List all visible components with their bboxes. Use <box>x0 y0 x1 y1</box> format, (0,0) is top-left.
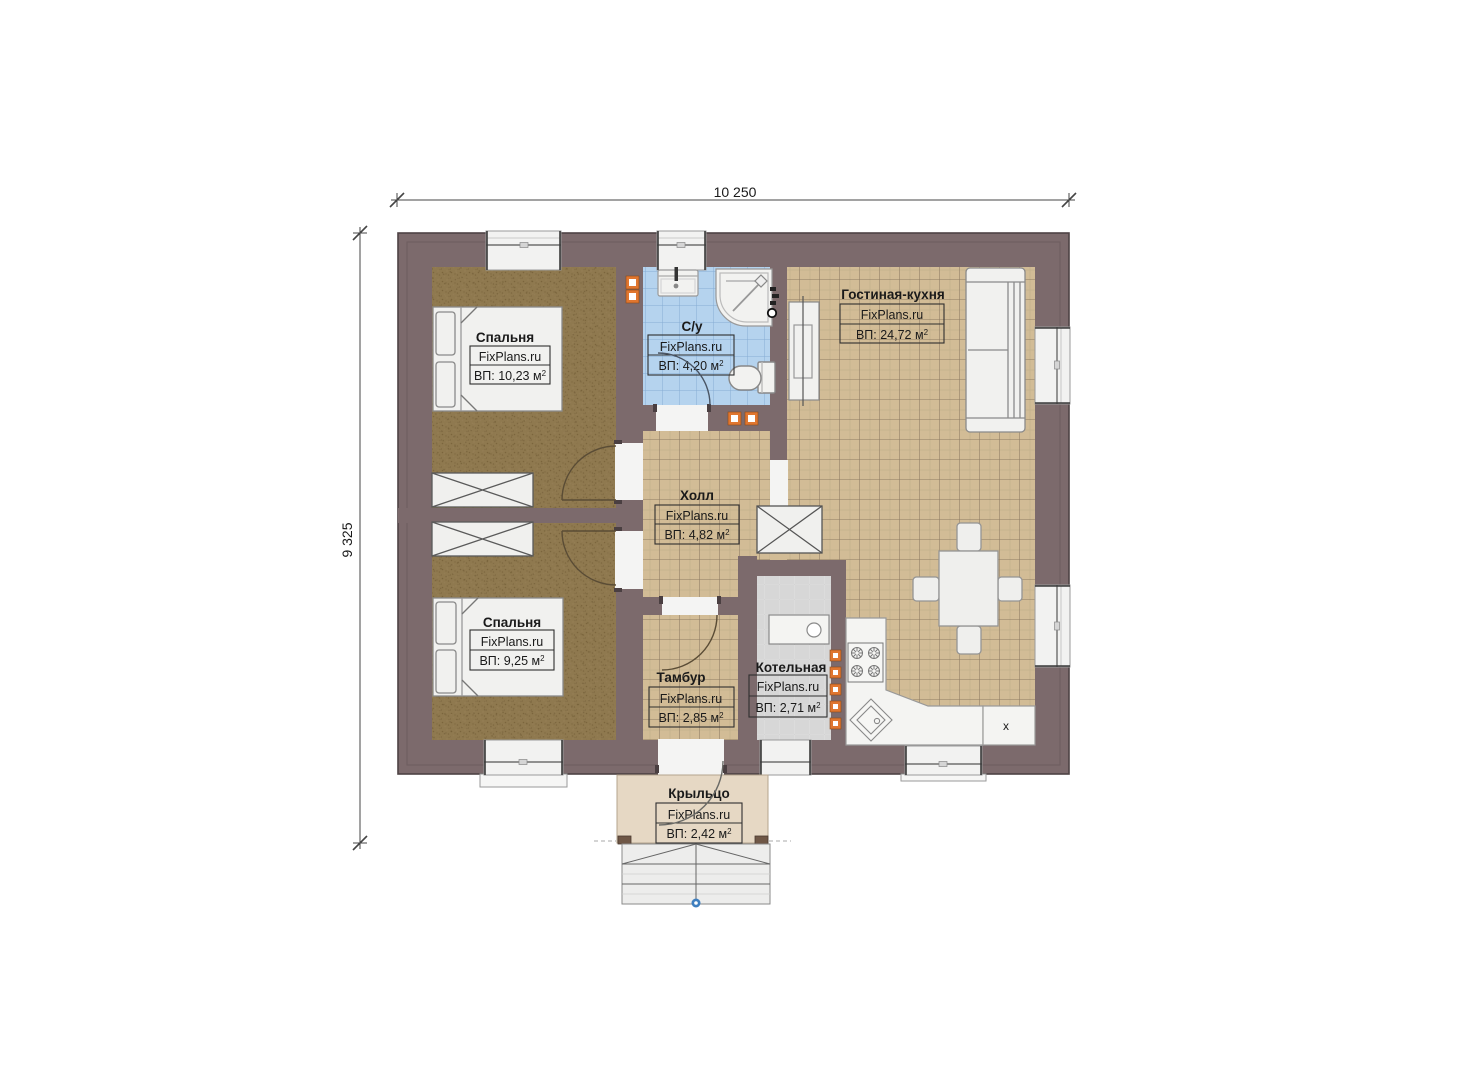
svg-text:ВП: 4,82 м2: ВП: 4,82 м2 <box>664 528 730 542</box>
svg-text:ВП: 2,42 м2: ВП: 2,42 м2 <box>666 827 732 841</box>
svg-text:ВП: 2,85 м2: ВП: 2,85 м2 <box>658 711 724 725</box>
svg-text:Котельная: Котельная <box>756 660 827 675</box>
svg-text:Спальня: Спальня <box>476 330 534 345</box>
svg-text:Крыльцо: Крыльцо <box>668 786 729 801</box>
svg-text:10 250: 10 250 <box>714 184 757 200</box>
svg-text:Гостиная-кухня: Гостиная-кухня <box>841 287 944 302</box>
svg-text:Спальня: Спальня <box>483 615 541 630</box>
svg-text:Тамбур: Тамбур <box>657 670 706 685</box>
svg-text:С/у: С/у <box>681 319 703 334</box>
svg-text:ВП: 2,71 м2: ВП: 2,71 м2 <box>755 701 821 715</box>
svg-text:FixPlans.ru: FixPlans.ru <box>757 680 820 694</box>
svg-text:ВП: 4,20 м2: ВП: 4,20 м2 <box>658 359 724 373</box>
svg-text:FixPlans.ru: FixPlans.ru <box>861 308 924 322</box>
svg-text:ВП: 24,72 м2: ВП: 24,72 м2 <box>856 328 929 342</box>
svg-text:ВП: 10,23 м2: ВП: 10,23 м2 <box>474 369 547 383</box>
svg-text:FixPlans.ru: FixPlans.ru <box>660 692 723 706</box>
svg-text:FixPlans.ru: FixPlans.ru <box>479 350 542 364</box>
svg-text:FixPlans.ru: FixPlans.ru <box>481 635 544 649</box>
svg-text:9 325: 9 325 <box>339 522 355 557</box>
svg-text:Холл: Холл <box>680 488 714 503</box>
svg-text:FixPlans.ru: FixPlans.ru <box>660 340 723 354</box>
svg-text:ВП: 9,25 м2: ВП: 9,25 м2 <box>479 654 545 668</box>
svg-text:x: x <box>1003 719 1009 733</box>
svg-text:FixPlans.ru: FixPlans.ru <box>666 509 729 523</box>
